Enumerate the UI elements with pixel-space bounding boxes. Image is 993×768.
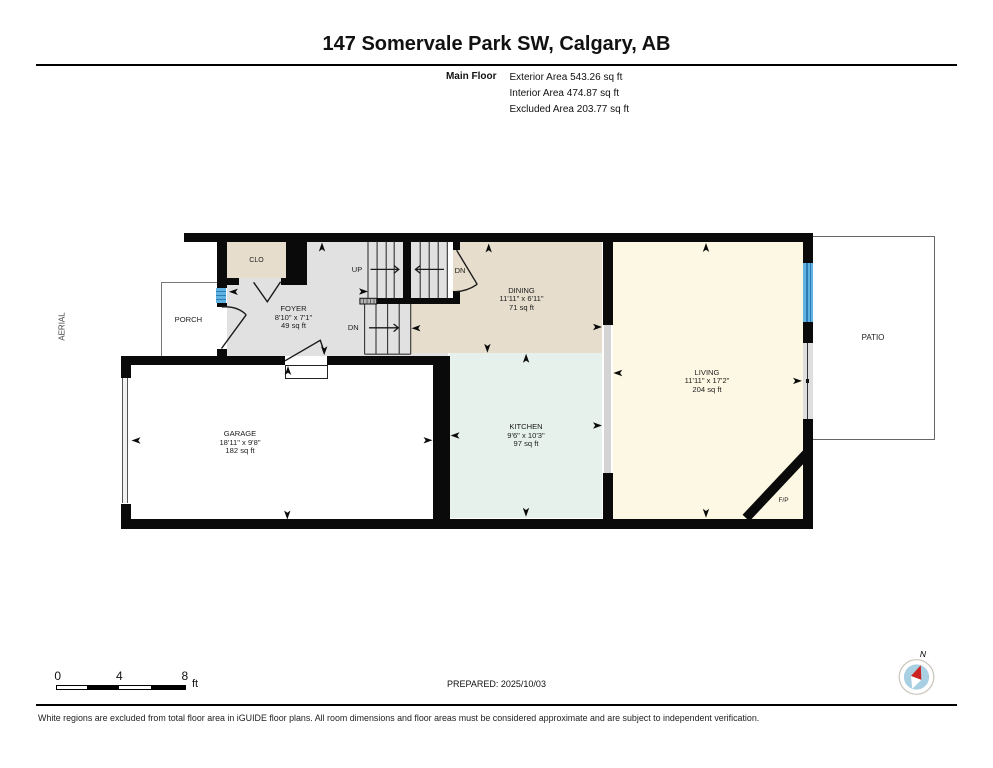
svg-text:N: N — [920, 649, 927, 659]
